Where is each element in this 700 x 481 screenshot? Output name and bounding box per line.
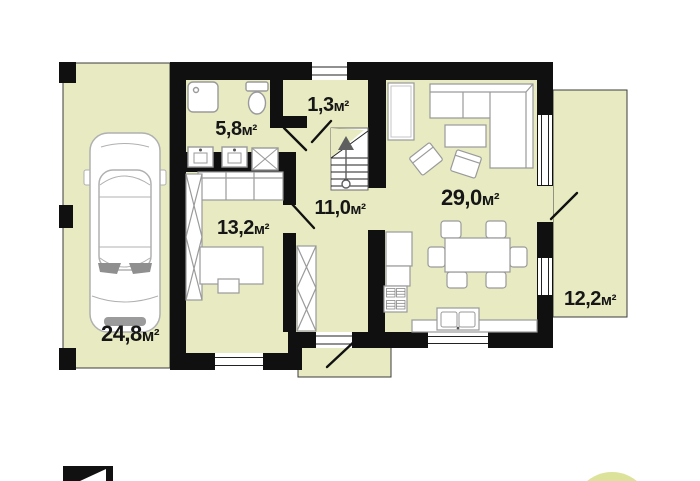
entrance-threshold: [316, 332, 352, 348]
room-area-value: 24,8: [101, 321, 142, 346]
window-right-lower: [538, 258, 552, 295]
room-area-value: 1,3: [307, 94, 333, 116]
wall-left: [170, 62, 186, 370]
chair-icon: [486, 272, 506, 288]
chair-icon: [486, 221, 506, 238]
window-bottom-kitchen: [428, 332, 488, 348]
terrace-door-opening: [537, 186, 553, 222]
room-label-garage: 24,8м²: [101, 323, 159, 345]
room-area-unit: м²: [142, 326, 159, 345]
washbasin-icon: [188, 147, 213, 167]
stairs-icon: [331, 128, 368, 190]
shower-icon: [188, 82, 218, 112]
window-right-upper: [538, 115, 552, 185]
wall-bedroom-lower: [283, 233, 296, 332]
floor-plan-drawing: [0, 0, 700, 481]
room-area-value: 5,8: [215, 118, 241, 140]
bedside-table-icon: [218, 279, 239, 293]
room-area-unit: м²: [334, 98, 349, 115]
kitchen-counter-icon: [386, 266, 410, 286]
washbasin-icon: [222, 147, 247, 167]
garage-pillar-middle: [59, 205, 73, 228]
room-area-unit: м²: [254, 221, 269, 238]
room-area-value: 12,2: [564, 288, 601, 310]
room-label-closet: 1,3м²: [307, 95, 348, 115]
room-area-unit: м²: [242, 122, 257, 139]
garage-pillar-top: [59, 62, 76, 83]
room-label-bathroom: 5,8м²: [215, 119, 256, 139]
wall-bottom-jog: [288, 332, 302, 370]
room-label-hallway: 11,0м²: [315, 198, 366, 218]
window-bottom-bedroom: [215, 353, 263, 370]
wall-bedroom-upper: [283, 152, 296, 205]
coffee-table-icon: [445, 125, 486, 147]
tv-cabinet-icon: [388, 83, 414, 140]
room-label-terrace: 12,2м²: [564, 289, 616, 309]
chair-icon: [428, 247, 445, 267]
room-area-value: 11,0: [315, 197, 351, 219]
room-area-unit: м²: [350, 201, 365, 218]
closet-icon: [198, 172, 283, 200]
car-icon: [84, 133, 166, 332]
chair-icon: [447, 272, 467, 288]
kitchen-sink-icon: [437, 308, 479, 330]
wall-kitchen: [368, 230, 385, 348]
room-area-value: 13,2: [217, 217, 254, 239]
fridge-icon: [386, 232, 412, 266]
wall-top: [170, 62, 553, 80]
room-area-value: 29,0: [441, 185, 482, 210]
garage-pillar-bottom: [59, 348, 76, 370]
wall-stairs: [368, 80, 386, 188]
room-label-living-room: 29,0м²: [441, 187, 499, 209]
terrace-floor: [553, 90, 627, 317]
dining-table-icon: [445, 238, 510, 272]
logo: [63, 466, 113, 481]
wall-bottom-entry-left: [302, 332, 316, 348]
washing-machine-icon: [252, 148, 278, 170]
room-area-unit: м²: [482, 190, 499, 209]
window-top: [312, 62, 347, 80]
toilet-icon: [246, 82, 268, 114]
floor-plan-page: 5,8м² 1,3м² 11,0м² 13,2м² 29,0м² 24,8м² …: [0, 0, 700, 481]
room-area-unit: м²: [601, 292, 616, 309]
chair-icon: [510, 247, 527, 267]
chair-icon: [441, 221, 461, 238]
stove-icon: [384, 286, 407, 312]
hallway-wardrobe-icon: [297, 246, 316, 331]
wall-closet-bottom: [270, 116, 307, 128]
decorative-circle: [573, 472, 651, 481]
room-label-bedroom: 13,2м²: [217, 218, 269, 238]
